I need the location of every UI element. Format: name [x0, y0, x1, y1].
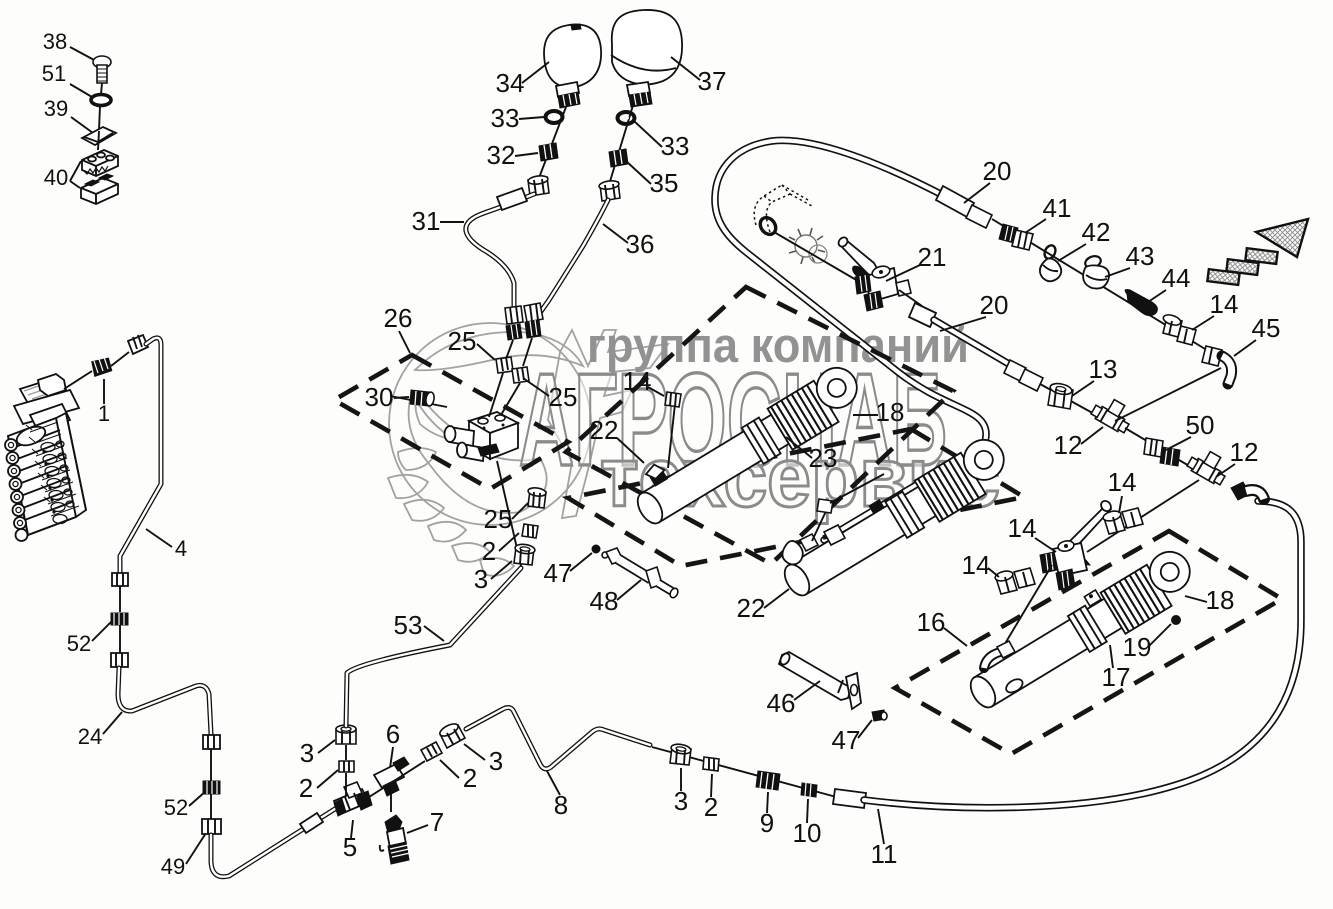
- svg-text:23: 23: [809, 443, 838, 473]
- svg-text:2: 2: [299, 773, 313, 803]
- svg-text:3: 3: [300, 738, 314, 768]
- svg-text:13: 13: [1089, 354, 1118, 384]
- svg-text:43: 43: [1126, 241, 1155, 271]
- svg-text:33: 33: [491, 103, 520, 133]
- svg-text:12: 12: [1054, 430, 1083, 460]
- svg-text:3: 3: [474, 564, 488, 594]
- svg-text:42: 42: [1082, 217, 1111, 247]
- svg-text:32: 32: [487, 140, 516, 170]
- svg-text:2: 2: [482, 536, 496, 566]
- svg-text:2: 2: [463, 763, 477, 793]
- svg-text:25: 25: [448, 326, 477, 356]
- svg-text:46: 46: [767, 688, 796, 718]
- svg-text:50: 50: [1186, 410, 1215, 440]
- svg-text:37: 37: [698, 66, 727, 96]
- svg-text:41: 41: [1043, 193, 1072, 223]
- svg-text:53: 53: [394, 610, 423, 640]
- svg-text:19: 19: [1123, 632, 1152, 662]
- svg-text:21: 21: [918, 242, 947, 272]
- svg-text:25: 25: [549, 382, 578, 412]
- svg-text:8: 8: [554, 790, 568, 820]
- svg-text:35: 35: [650, 168, 679, 198]
- svg-text:22: 22: [737, 593, 766, 623]
- svg-text:14: 14: [1108, 467, 1137, 497]
- svg-text:14: 14: [1210, 289, 1239, 319]
- svg-text:17: 17: [1102, 662, 1131, 692]
- svg-text:20: 20: [980, 290, 1009, 320]
- svg-text:24: 24: [78, 724, 102, 749]
- svg-text:22: 22: [590, 415, 619, 445]
- svg-text:31: 31: [412, 206, 441, 236]
- svg-text:48: 48: [590, 586, 619, 616]
- svg-text:49: 49: [161, 854, 185, 879]
- svg-text:34: 34: [496, 68, 525, 98]
- svg-text:36: 36: [626, 229, 655, 259]
- svg-text:14: 14: [962, 550, 991, 580]
- svg-text:47: 47: [832, 725, 861, 755]
- svg-text:52: 52: [67, 631, 91, 656]
- svg-text:18: 18: [1206, 585, 1235, 615]
- svg-text:45: 45: [1252, 313, 1281, 343]
- svg-text:26: 26: [384, 303, 413, 333]
- svg-text:51: 51: [42, 61, 66, 86]
- svg-text:6: 6: [386, 719, 400, 749]
- svg-text:52: 52: [164, 795, 188, 820]
- svg-text:30: 30: [365, 382, 394, 412]
- svg-text:33: 33: [661, 131, 690, 161]
- svg-text:5: 5: [343, 832, 357, 862]
- svg-text:25: 25: [484, 504, 513, 534]
- svg-text:7: 7: [430, 807, 444, 837]
- svg-text:47: 47: [544, 558, 573, 588]
- svg-text:40: 40: [44, 165, 68, 190]
- svg-text:1: 1: [98, 401, 110, 426]
- svg-text:20: 20: [983, 156, 1012, 186]
- svg-text:12: 12: [1230, 437, 1259, 467]
- svg-text:14: 14: [1008, 513, 1037, 543]
- svg-text:4: 4: [175, 536, 187, 561]
- svg-text:16: 16: [917, 607, 946, 637]
- svg-text:39: 39: [44, 96, 68, 121]
- svg-text:14: 14: [623, 366, 652, 396]
- svg-text:38: 38: [43, 29, 67, 54]
- svg-text:18: 18: [876, 397, 905, 427]
- svg-text:3: 3: [489, 746, 503, 776]
- svg-text:44: 44: [1162, 263, 1191, 293]
